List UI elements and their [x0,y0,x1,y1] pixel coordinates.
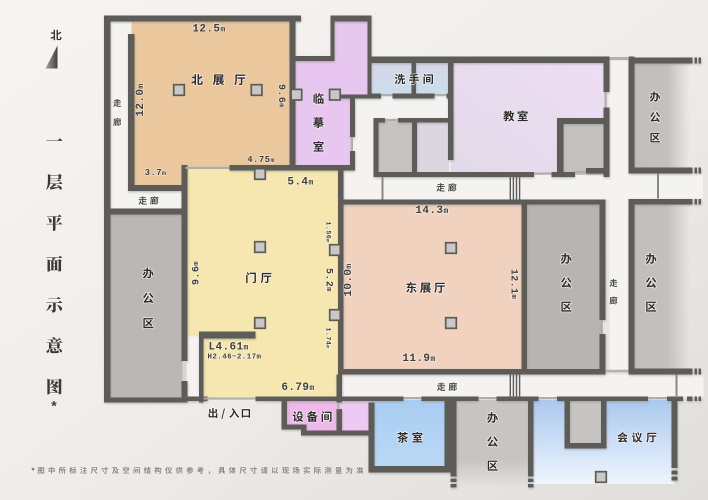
svg-text:12.0m: 12.0m [135,83,147,116]
svg-text:14.3m: 14.3m [415,205,448,217]
svg-text:5.2m: 5.2m [323,268,334,292]
svg-text:6.79m: 6.79m [281,382,314,394]
svg-text:*: * [51,398,57,414]
svg-text:L4.61m: L4.61m [209,342,249,354]
svg-text:10.0m: 10.0m [343,263,355,296]
svg-text:9.6m: 9.6m [275,84,286,108]
svg-text:11.9m: 11.9m [402,353,435,365]
svg-text:H2.46~2.17m: H2.46~2.17m [208,354,262,362]
svg-text:12.1m: 12.1m [508,269,519,300]
svg-text:5.4m: 5.4m [287,177,313,189]
svg-text:9.6m: 9.6m [192,261,203,285]
svg-text:12.5m: 12.5m [192,24,225,36]
